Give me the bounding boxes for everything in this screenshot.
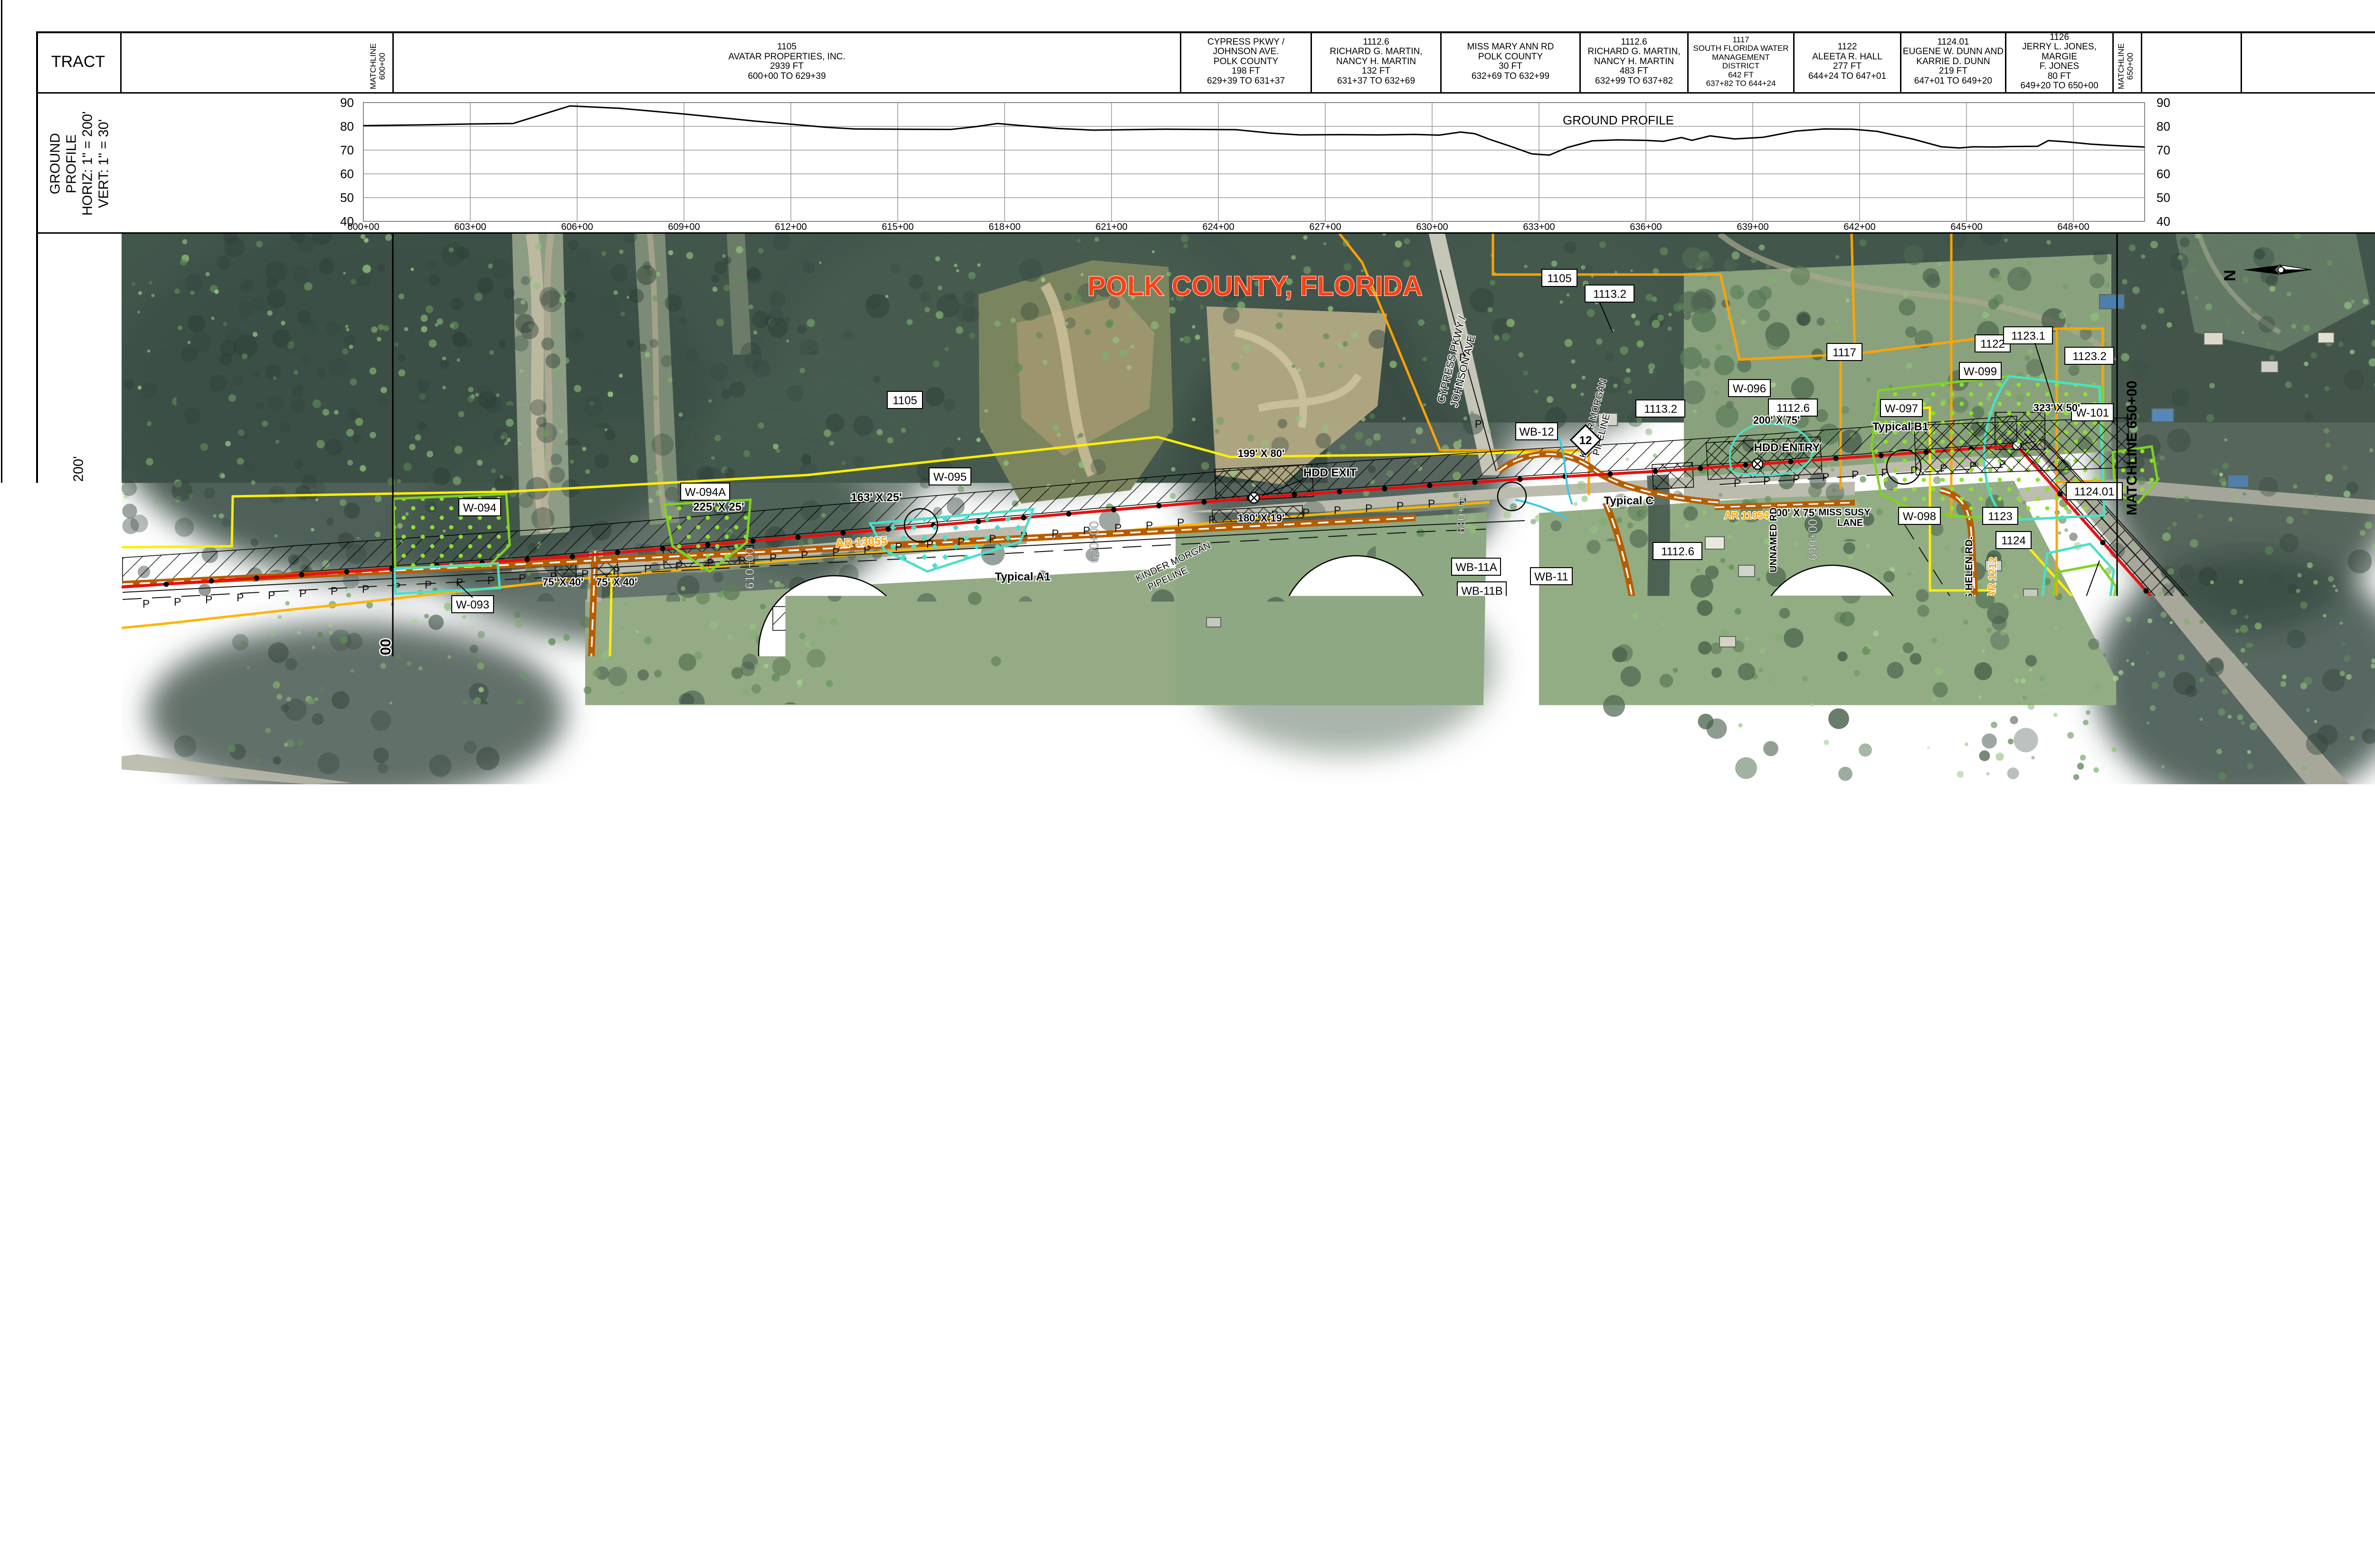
svg-text:630+28 GUY ANCHOR RT: 630+28 GUY ANCHOR RT: [1460, 784, 1470, 877]
svg-text:CP TEST STATION: CP TEST STATION: [1323, 1483, 1387, 1491]
svg-text:626+70 FOREIGN: 626+70 FOREIGN: [1311, 803, 1320, 877]
svg-text:633+47 HOUSE LT 23': 633+47 HOUSE LT 23': [1855, 785, 1865, 877]
svg-text:N.T.S.: N.T.S.: [1818, 694, 1845, 705]
svg-text:Typical B1: Typical B1: [1872, 420, 1928, 433]
svg-text:623+62: 623+62: [1202, 952, 1214, 987]
svg-text:50': 50': [821, 618, 834, 628]
svg-text:PARCEL NUMBER: PARCEL NUMBER: [1535, 1430, 1599, 1438]
svg-text:632+23 FOREIGN: 632+23 FOREIGN: [1732, 803, 1742, 877]
svg-text:631+30 GUY ANCHOR RT: 631+30 GUY ANCHOR RT: [1633, 784, 1643, 877]
svg-text:WORKSPACE: WORKSPACE: [1535, 1333, 1583, 1341]
svg-text:Typical / Detail: Typical / Detail: [1492, 1511, 1528, 1517]
svg-text:GROUND PROFILE: GROUND PROFILE: [1563, 113, 1674, 127]
svg-text:P: P: [205, 593, 212, 606]
svg-text:WATERBODY: WATERBODY: [1535, 1406, 1583, 1414]
svg-text:600: 600: [1852, 1486, 1868, 1497]
svg-text:631+31 POWER POLE RT: 631+31 POWER POLE RT: [1650, 784, 1660, 877]
svg-text:6: 6: [839, 908, 844, 919]
svg-text:4: 4: [1992, 900, 1997, 911]
svg-text:80: 80: [2156, 119, 2170, 133]
svg-text:1113.2: 1113.2: [1644, 403, 1677, 416]
svg-text:323' X 50': 323' X 50': [2033, 402, 2080, 414]
svg-text:IB-103: IB-103: [1968, 905, 1978, 933]
svg-text:621+00: 621+00: [1095, 222, 1127, 232]
svg-text:HDD EXIT: HDD EXIT: [1303, 466, 1357, 479]
svg-text:644+37: 644+37: [1911, 1123, 1923, 1158]
svg-text:632+58: 632+58: [1511, 1123, 1523, 1158]
svg-text:609+00: 609+00: [668, 222, 700, 232]
svg-text:630+30 GUY ANCHOR RT: 630+30 GUY ANCHOR RT: [1474, 784, 1484, 877]
svg-text:W: W: [1396, 1350, 1404, 1358]
svg-text:X: X: [1396, 1310, 1402, 1318]
svg-text:SHOOFLY ROAD: SHOOFLY ROAD: [1415, 1465, 1473, 1473]
svg-text:617+79: 617+79: [1001, 1123, 1013, 1158]
svg-text:TELEPHONE LINE: TELEPHONE LINE: [1415, 1336, 1479, 1344]
svg-text:630+73 CL AR 2268: 630+73 CL AR 2268: [1514, 796, 1524, 877]
svg-text:W: W: [1399, 1531, 1406, 1539]
svg-text:632+49 WATER EDGE: 632+49 WATER EDGE: [1774, 784, 1784, 877]
svg-text:LINE PIPE: LINE PIPE: [1323, 1327, 1359, 1335]
svg-text:60: 60: [2156, 167, 2170, 181]
svg-text:646+59: 646+59: [1987, 1123, 1999, 1158]
svg-text:1123: 1123: [1988, 510, 2013, 523]
svg-text:HDD ENTRY: HDD ENTRY: [1754, 441, 1820, 454]
svg-text:IS THE SOLE RESPONSIBILITY OF: IS THE SOLE RESPONSIBILITY OF THE CONTRA…: [1166, 751, 1721, 763]
svg-text:CONFIGURATION: CONFIGURATION: [1535, 1527, 1597, 1535]
svg-text:6: 6: [1865, 902, 1871, 912]
svg-text:WB-11A: WB-11A: [1455, 561, 1497, 574]
svg-text:P: P: [268, 589, 275, 601]
svg-text:605+23 MONUMENT LT: 605+23 MONUMENT LT: [566, 784, 576, 877]
svg-text:646+90 ROAD EDGE: 646+90 ROAD EDGE: [2065, 790, 2075, 877]
svg-text:648+39 FENCE CORNER: 648+39 FENCE CORNER: [2137, 784, 2147, 877]
svg-text:631+07 POWER LINE: 631+07 POWER LINE: [1547, 787, 1557, 877]
svg-text:631+30 GUY ANCHOR LT: 631+30 GUY ANCHOR LT: [1598, 784, 1608, 877]
svg-text:647+49 CANOPY LT 28': 647+49 CANOPY LT 28': [2115, 784, 2125, 877]
svg-text:SEWER LINE: SEWER LINE: [1415, 1363, 1461, 1371]
svg-text:NAME: NAME: [1535, 1454, 1557, 1463]
svg-text:606+00: 606+00: [561, 222, 593, 232]
svg-text:629+77: 629+77: [1415, 952, 1426, 987]
svg-text:620+00: 620+00: [1087, 522, 1101, 563]
svg-text:TYP. CONFIG. A1: TYP. CONFIG. A1: [794, 693, 875, 704]
svg-text:P: P: [1397, 1323, 1402, 1331]
svg-text:W-097: W-097: [1885, 402, 1918, 415]
svg-text:N: N: [2221, 270, 2239, 282]
svg-text:603+33 POWER LINE: 603+33 POWER LINE: [505, 787, 515, 877]
svg-text:MATCHLINE: MATCHLINE: [365, 909, 378, 971]
svg-text:120': 120': [1985, 917, 2005, 930]
svg-text:PROPOSED C/L: PROPOSED C/L: [1325, 626, 1396, 637]
svg-text:FOREIGN PIPELINE: FOREIGN PIPELINE: [1415, 1417, 1484, 1425]
svg-text:1105: 1105: [893, 394, 917, 407]
svg-text:8°: 8°: [1383, 916, 1393, 925]
svg-text:P: P: [519, 572, 526, 584]
svg-text:619+03 FENCE CORNER: 619+03 FENCE CORNER: [1046, 784, 1056, 877]
svg-text:647+60 CANOPY LT 18': 647+60 CANOPY LT 18': [2125, 784, 2135, 877]
svg-text:603+32: 603+32: [503, 1123, 515, 1158]
svg-text:632+37 FOREIGN PIL: 632+37 FOREIGN PIL: [1750, 787, 1760, 877]
svg-text:647+00 IRON ROD RT 1': 647+00 IRON ROD RT 1': [2086, 784, 2096, 877]
svg-text:POLK COUNTY, FLORIDA: POLK COUNTY, FLORIDA: [1087, 271, 1423, 302]
svg-text:13.5 CC: 13.5 CC: [2018, 915, 2056, 927]
svg-text:RT 17': RT 17': [1057, 813, 1067, 839]
svg-text:HIGHWAY / ROAD: HIGHWAY / ROAD: [1415, 1444, 1477, 1452]
svg-text:SET-ON WEIGHTS: SET-ON WEIGHTS: [1323, 1399, 1387, 1407]
svg-text:630+00: 630+00: [1454, 493, 1468, 534]
svg-text:648+47: 648+47: [2053, 1123, 2065, 1158]
svg-text:T.W.S.: T.W.S.: [1819, 618, 1846, 628]
svg-text:KINDER MORGAN: KINDER MORGAN: [1761, 784, 1771, 839]
svg-text:633+00: 633+00: [1523, 222, 1555, 232]
svg-text:646+76: 646+76: [2008, 1123, 2020, 1158]
svg-text:P: P: [769, 551, 777, 564]
svg-text:225' X 25': 225' X 25': [693, 501, 744, 513]
svg-text:21-9K#: 21-9K#: [2020, 892, 2054, 904]
svg-text:199' X 80': 199' X 80': [1238, 447, 1285, 459]
svg-text:PERM. ROW: PERM. ROW: [1330, 653, 1386, 664]
svg-text:630+90: 630+90: [1451, 952, 1463, 987]
svg-text:WB-11: WB-11: [1534, 570, 1568, 583]
svg-text:624+73: 624+73: [1249, 952, 1261, 987]
svg-text:633+19 ROAD EDGE: 633+19 ROAD EDGE: [1834, 790, 1844, 877]
svg-text:1122: 1122: [1980, 338, 2005, 351]
svg-text:646+23 ROAD EDGE: 646+23 ROAD EDGE: [2034, 790, 2044, 877]
svg-text:N.T.S.: N.T.S.: [821, 705, 848, 716]
svg-text:GENERAL SURVEY: GENERAL SURVEY: [1415, 1404, 1483, 1412]
svg-text:647+28: 647+28: [2037, 952, 2049, 987]
svg-text:622+52 ROAD EDGE: 622+52 ROAD EDGE: [1171, 790, 1181, 877]
svg-text:W-094A: W-094A: [685, 486, 726, 499]
svg-text:P: P: [1475, 418, 1482, 430]
svg-text:MISS SUSY: MISS SUSY: [1819, 507, 1871, 518]
svg-text:633+08 CL AR 2269: 633+08 CL AR 2269: [1810, 796, 1820, 877]
svg-text:632+63 TOP OF BANK: 632+63 TOP OF BANK: [1784, 784, 1794, 877]
svg-text:638+67: 638+67: [1729, 952, 1741, 987]
svg-text:MATCHLINE 650+00: MATCHLINE 650+00: [2112, 1093, 2124, 1158]
svg-text:75' X 40': 75' X 40': [596, 576, 637, 588]
svg-text:180' X 19': 180' X 19': [1238, 512, 1285, 524]
svg-text:40: 40: [2156, 214, 2170, 228]
svg-text:(1000 FEET): (1000 FEET): [1535, 1498, 1577, 1506]
svg-text:TRAP: TRAP: [1415, 1518, 1435, 1526]
svg-text:647+24: 647+24: [2023, 1123, 2035, 1158]
svg-text:POWER LINE: POWER LINE: [1415, 1323, 1462, 1331]
svg-text:640+00: 640+00: [1805, 519, 1820, 561]
svg-text:632+37: 632+37: [1505, 952, 1517, 987]
svg-text:W-098: W-098: [1903, 510, 1936, 523]
svg-text:W-096: W-096: [1733, 382, 1766, 395]
svg-text:638+47 FENCE: 638+47 FENCE: [1991, 813, 2001, 877]
svg-text:4: 4: [1509, 895, 1514, 906]
svg-text:647+35 POWER POLE LT: 647+35 POWER POLE LT: [2098, 784, 2108, 877]
svg-text:T: T: [1397, 1337, 1402, 1345]
svg-text:P: P: [613, 565, 620, 577]
svg-text:XXXXXXXX: XXXXXXXX: [1494, 1448, 1529, 1455]
svg-text:627+00: 627+00: [1309, 222, 1341, 232]
svg-text:P: P: [1208, 513, 1216, 526]
svg-text:P: P: [801, 549, 808, 561]
svg-text:1123.1: 1123.1: [2011, 330, 2045, 342]
svg-text:646+18 CL AR 1212: 646+18 CL AR 1212: [2014, 796, 2023, 877]
svg-text:100: 100: [1667, 1486, 1682, 1497]
svg-text:646+95: 646+95: [2015, 952, 2027, 987]
svg-text:631+48 GUY ANCHOR RT: 631+48 GUY ANCHOR RT: [1684, 784, 1694, 877]
svg-text:636+00: 636+00: [1630, 222, 1662, 232]
svg-text:8°: 8°: [1724, 912, 1735, 922]
svg-text:50': 50': [1305, 653, 1318, 664]
svg-text:624+00: 624+00: [1202, 222, 1234, 232]
svg-text:P: P: [174, 596, 181, 608]
svg-text:Typical A1: Typical A1: [995, 570, 1050, 583]
svg-text:641+49: 641+49: [1831, 952, 1843, 987]
svg-text:101: 101: [1298, 1437, 1309, 1444]
svg-text:MATERIAL ITEM: MATERIAL ITEM: [1323, 1437, 1380, 1445]
svg-text:1112.6: 1112.6: [1776, 402, 1810, 415]
svg-text:29-9K# SBW: 29-9K# SBW: [1897, 894, 1957, 906]
svg-text:624+73: 624+73: [1241, 1123, 1253, 1158]
svg-text:PERMANENT ROW: PERMANENT ROW: [1535, 1297, 1602, 1305]
svg-text:631+45 GUY ANCHOR RT: 631+45 GUY ANCHOR RT: [1667, 784, 1677, 877]
svg-text:TRANSITION PIPE: TRANSITION PIPE: [1323, 1370, 1387, 1378]
svg-text:MATCHLINE 600+00: MATCHLINE 600+00: [377, 639, 394, 778]
svg-text:0: 0: [1635, 1486, 1640, 1497]
svg-text:633+40 CANOPY RT 2': 633+40 CANOPY RT 2': [1844, 784, 1854, 877]
svg-text:WATER WELL: WATER WELL: [1415, 1531, 1464, 1539]
svg-text:623+59 KINDER MORGAN: 623+59 KINDER MORGAN: [1198, 784, 1208, 877]
svg-text:631+66 TOP OF BANK: 631+66 TOP OF BANK: [1700, 784, 1710, 877]
svg-text:623+38: 623+38: [1194, 1123, 1206, 1158]
svg-text:646+84 MISS HELEN RD.: 646+84 MISS HELEN RD.: [2044, 784, 2054, 877]
svg-text:639+00: 639+00: [1737, 222, 1768, 232]
svg-text:XX: XX: [1300, 1460, 1307, 1467]
svg-text:633+24: 633+24: [1533, 952, 1545, 987]
svg-text:603+00: 603+00: [454, 222, 486, 232]
svg-text:P: P: [299, 587, 306, 599]
svg-text:634+63 FENCE CORNER: 634+63 FENCE CORNER: [1927, 784, 1937, 877]
svg-text:737': 737': [1858, 919, 1879, 931]
svg-text:600+00: 600+00: [347, 222, 379, 232]
svg-text:FORESTED WETLAND: FORESTED WETLAND: [1535, 1378, 1610, 1386]
svg-text:642+00: 642+00: [1843, 222, 1875, 232]
svg-text:631+74: 631+74: [1482, 1123, 1494, 1158]
svg-text:603+53: 603+53: [509, 952, 521, 987]
svg-text:1124.01: 1124.01: [2074, 485, 2115, 498]
svg-text:P: P: [1822, 471, 1829, 483]
svg-text:AR 13055: AR 13055: [836, 534, 887, 550]
svg-text:631+24 UNDERGROUND: 631+24 UNDERGROUND: [1560, 784, 1570, 877]
svg-text:P: P: [1302, 506, 1310, 519]
svg-text:633+08 MISS MARY ANN: 633+08 MISS MARY ANN: [1821, 784, 1831, 839]
svg-text:DISCLAIMER: UNIVERSALPEGASUS: DISCLAIMER: UNIVERSALPEGASUS INTERNATION…: [1166, 698, 1684, 710]
svg-text:80: 80: [340, 119, 354, 133]
svg-text:T.W.S.: T.W.S.: [821, 628, 849, 639]
svg-text:630+45 TOP OF BANK: 630+45 TOP OF BANK: [1488, 784, 1498, 877]
svg-text:TEMPORARY WORKSPACE: TEMPORARY WORKSPACE: [1535, 1311, 1610, 1320]
svg-text:622+38 PI 8°39'33" LT: 622+38 PI 8°39'33" LT: [1161, 787, 1171, 877]
svg-text:NON FORESTED WETLAND: NON FORESTED WETLAND: [1535, 1355, 1610, 1363]
svg-text:1: 1: [1357, 929, 1361, 937]
svg-text:P: P: [487, 574, 494, 587]
svg-text:70: 70: [340, 143, 354, 157]
svg-text:6: 6: [2055, 902, 2060, 912]
svg-text:P: P: [237, 591, 244, 604]
svg-text:50: 50: [340, 190, 354, 205]
svg-text:163' X 25': 163' X 25': [851, 491, 902, 504]
svg-text:637+08 DWELLING: 637+08 DWELLING: [1981, 797, 1991, 877]
svg-text:644+37: 644+37: [1924, 1123, 1936, 1158]
svg-text:W-099: W-099: [1964, 365, 1997, 378]
svg-text:800: 800: [1926, 1486, 1942, 1497]
svg-text:610+00: 610+00: [742, 548, 757, 589]
svg-text:629+77 FOREIGN P/L: 629+77 FOREIGN P/L: [1416, 787, 1426, 877]
svg-text:617+87 ROAD EDGE: 617+87 ROAD EDGE: [1006, 790, 1016, 877]
svg-text:PIPELINE ROUTE: PIPELINE ROUTE: [1415, 1296, 1476, 1304]
svg-text:ANY EXCAVATION.: ANY EXCAVATION.: [1166, 765, 1258, 776]
svg-text:630+00: 630+00: [1416, 222, 1448, 232]
svg-text:XXXXX.XXX: XXXXX.XXX: [1493, 1431, 1529, 1438]
svg-text:1: 1: [1292, 1482, 1295, 1490]
svg-text:633+92 FENCE CORNER: 633+92 FENCE CORNER: [1888, 784, 1898, 877]
svg-text:612+00: 612+00: [775, 222, 807, 232]
svg-text:646+04: 646+04: [1975, 1123, 1987, 1158]
svg-text:P: P: [644, 562, 651, 575]
svg-text:HDD PIPE: HDD PIPE: [1323, 1298, 1358, 1306]
svg-text:KINDER MORGAN: KINDER MORGAN: [1427, 784, 1437, 839]
svg-text:P: P: [1146, 519, 1153, 532]
svg-text:630+55: 630+55: [1440, 952, 1452, 987]
svg-text:W-093: W-093: [456, 599, 489, 611]
svg-text:U: U: [1397, 1391, 1403, 1399]
svg-text:648+00: 648+00: [2057, 222, 2089, 232]
svg-text:WB-12: WB-12: [1519, 426, 1554, 438]
svg-text:P: P: [675, 560, 683, 572]
svg-text:S: S: [1397, 1364, 1403, 1372]
svg-text:1105: 1105: [1547, 272, 1572, 285]
svg-text:646+19 UNNAMED RD: 646+19 UNNAMED RD: [2023, 784, 2033, 877]
svg-text:P: P: [425, 579, 432, 591]
svg-text:600+00: 600+00: [377, 935, 389, 971]
svg-text:607+80: 607+80: [657, 1123, 669, 1158]
svg-text:1113.2: 1113.2: [1593, 288, 1626, 301]
svg-text:RT 19': RT 19': [2148, 813, 2158, 839]
svg-text:P: P: [1396, 500, 1404, 512]
svg-text:RAILROAD: RAILROAD: [1415, 1431, 1454, 1439]
svg-text:P: P: [362, 583, 369, 595]
svg-text:646+72: 646+72: [1987, 952, 1999, 987]
svg-text:631+77 WATER EDGE: 631+77 WATER EDGE: [1710, 784, 1720, 877]
svg-text:MATCHLINE: MATCHLINE: [2073, 908, 2085, 970]
svg-text:647+24: 647+24: [2026, 952, 2038, 987]
svg-text:600+00: 600+00: [432, 836, 444, 873]
svg-text:200' X 75': 200' X 75': [1753, 414, 1800, 426]
svg-text:650+00: 650+00: [2085, 933, 2097, 970]
svg-text:631+30 POWER POLE LT: 631+30 POWER POLE LT: [1581, 784, 1591, 877]
svg-text:1112.6: 1112.6: [1661, 545, 1694, 558]
svg-text:TELEPHONE LT: TELEPHONE LT: [1571, 784, 1581, 839]
svg-text:630+08 FOREIGN: 630+08 FOREIGN: [1441, 803, 1451, 877]
svg-text:UNNAMED RD: UNNAMED RD: [609, 669, 620, 734]
svg-text:13.5 CC: 13.5 CC: [1909, 906, 1947, 918]
svg-text:645+72 PI 53°45'7" RT: 645+72 PI 53°45'7" RT: [2003, 785, 2013, 877]
svg-text:623+67 PI 8°34'32" RT: 623+67 PI 8°34'32" RT: [1216, 785, 1225, 877]
svg-text:P: P: [142, 598, 150, 610]
svg-text:P: P: [1428, 497, 1435, 510]
svg-text:1126: 1126: [2065, 638, 2090, 651]
svg-text:PLSS SECTION LINE: PLSS SECTION LINE: [1415, 1504, 1488, 1512]
svg-text:50': 50': [783, 673, 796, 684]
svg-text:BURIED CABLE: BURIED CABLE: [1415, 1377, 1471, 1385]
svg-text:W-095: W-095: [933, 471, 967, 484]
svg-text:C: C: [1397, 1377, 1403, 1385]
svg-text:200: 200: [1704, 1486, 1719, 1497]
svg-text:638+72: 638+72: [1741, 952, 1753, 987]
svg-text:605+49 CL AR 1211: 605+49 CL AR 1211: [592, 796, 602, 877]
svg-text:50: 50: [2156, 190, 2170, 205]
svg-text:AR 1212: AR 1212: [1985, 557, 1999, 599]
svg-text:P: P: [1365, 502, 1372, 514]
svg-text:W-101: W-101: [2076, 407, 2109, 419]
svg-text:MATCHLINE 650+00: MATCHLINE 650+00: [2124, 380, 2140, 515]
svg-text:629+14 FOREIGN: 629+14 FOREIGN: [1395, 803, 1405, 877]
svg-text:BORE PIPE: BORE PIPE: [1323, 1312, 1363, 1321]
svg-text:PIPELINE RT 24': PIPELINE RT 24': [1406, 784, 1415, 839]
svg-text:CONT. CONC. COAT.: CONT. CONC. COAT.: [1323, 1385, 1395, 1393]
svg-text:60: 60: [340, 167, 354, 181]
svg-text:630+73 CYPRESS PKWY /: 630+73 CYPRESS PKWY /: [1525, 784, 1535, 877]
svg-text:PIPELINE MARKER: PIPELINE MARKER: [1323, 1530, 1391, 1538]
svg-text:3R RAD FIT: 3R RAD FIT: [1323, 1341, 1364, 1349]
svg-text:645+00: 645+00: [1950, 222, 1982, 232]
svg-text:OTHERWISE) THAT THE INFORMATIO: OTHERWISE) THAT THE INFORMATION CONTAINE…: [1166, 712, 1716, 723]
svg-text:647+76: 647+76: [2035, 1123, 2047, 1158]
svg-text:WB-11B: WB-11B: [1461, 585, 1503, 598]
svg-text:90: 90: [2156, 95, 2170, 110]
svg-text:615+00: 615+00: [882, 222, 913, 232]
svg-text:25': 25': [1819, 607, 1832, 618]
svg-text:P: P: [1114, 522, 1121, 534]
svg-text:634+20 CANOPY RT 21': 634+20 CANOPY RT 21': [1905, 784, 1915, 877]
svg-text:P: P: [1793, 473, 1800, 485]
svg-text:1117: 1117: [1833, 346, 1856, 359]
svg-text:FENCE: FENCE: [1415, 1309, 1440, 1317]
svg-text:636+88 DWELLING: 636+88 DWELLING: [1970, 797, 1980, 877]
svg-text:616+43: 616+43: [955, 1123, 967, 1158]
svg-text:MATCHLINE: MATCHLINE: [420, 811, 432, 873]
svg-text:50': 50': [1781, 663, 1794, 673]
svg-text:P: P: [1734, 477, 1741, 489]
svg-text:P: P: [1334, 504, 1341, 516]
svg-text:400: 400: [1778, 1486, 1794, 1497]
svg-text:W-094: W-094: [463, 502, 496, 514]
svg-text:PROPOSED C/L: PROPOSED C/L: [1801, 636, 1872, 646]
svg-text:SUBSURFACE CONDITIONS AND: SUBSURFACE CONDITIONS AND CONFORMATION. …: [1166, 725, 1657, 736]
svg-text:634+23 CANOPY RT 19': 634+23 CANOPY RT 19': [1915, 784, 1925, 877]
svg-text:2473': 2473': [828, 925, 855, 938]
svg-text:PROPOSED C/L: PROPOSED C/L: [803, 646, 875, 656]
svg-text:TYP. CONFIG. B1: TYP. CONFIG. B1: [1792, 683, 1872, 694]
svg-text:ROOKERY: ROOKERY: [1535, 1476, 1572, 1484]
svg-text:624+73: 624+73: [1238, 952, 1250, 987]
svg-text:WARNING SIGN: WARNING SIGN: [1323, 1414, 1379, 1422]
svg-text:602+30: 602+30: [468, 1123, 480, 1158]
svg-text:632+91: 632+91: [1521, 952, 1533, 987]
svg-text:632+96 ROAD EDGE: 632+96 ROAD EDGE: [1796, 790, 1806, 877]
svg-text:PERM. ROW: PERM. ROW: [1806, 663, 1862, 673]
svg-text:PIPELINE RT 25': PIPELINE RT 25': [1262, 784, 1272, 839]
svg-text:MISS HELEN RD.: MISS HELEN RD.: [1964, 537, 1975, 618]
svg-text:INFORMATION CONTAINED HEREIN A: INFORMATION CONTAINED HEREIN AS TO SUCH …: [1166, 738, 1719, 750]
